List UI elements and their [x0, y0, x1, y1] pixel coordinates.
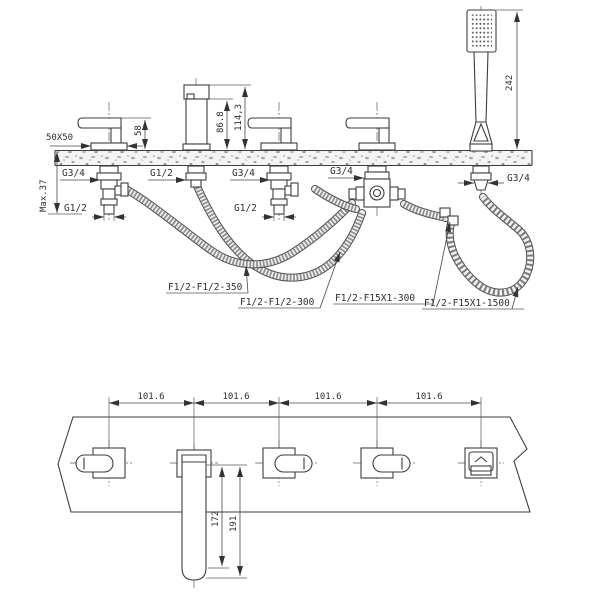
tub-spout: [183, 85, 210, 187]
hoses: [126, 184, 530, 293]
side-elevation-view: 58 86.8 114,3 242 50X50 Max.37 G3/4 G1/: [39, 6, 532, 309]
label-spout-shank: G1/2: [150, 168, 173, 179]
label-handshower-shank: G3/4: [507, 173, 530, 184]
dim-spout-height: 114,3: [234, 104, 244, 131]
label-valve2-inlet: G1/2: [234, 203, 257, 214]
dim-spout-reach: 172 191: [206, 465, 247, 578]
plan-diverter: [361, 448, 410, 478]
plan-valve-1: [76, 448, 125, 478]
spray-face: [472, 15, 493, 47]
dim-spacing-3: 101.6: [314, 392, 341, 402]
dim-spacing-4: 101.6: [415, 392, 442, 402]
plan-view: 101.6 101.6 101.6 101.6: [58, 392, 530, 588]
valve-1-lever: [78, 118, 121, 128]
hand-shower-handle: [474, 52, 488, 122]
dim-handle-height: 58: [134, 125, 144, 136]
hose-label-350: F1/2-F1/2-350: [168, 282, 243, 293]
label-valve1-shank: G3/4: [62, 168, 85, 179]
dim-spout-outer: 191: [229, 516, 239, 532]
deck-cross-section: [55, 151, 532, 166]
dim-spout-outlet-height: 86.8: [216, 111, 226, 133]
plan-extension-lines: [109, 397, 481, 452]
plan-shower-holder: [465, 448, 497, 478]
dim-handshower-height: 242: [505, 75, 515, 91]
label-valve2-shank: G3/4: [232, 168, 255, 179]
installation-diagram: 58 86.8 114,3 242 50X50 Max.37 G3/4 G1/: [0, 0, 600, 600]
hose-coupler: [440, 208, 458, 225]
hose-label-f15-1500: F1/2-F15X1-1500: [424, 298, 510, 309]
dim-spacing-1: 101.6: [137, 392, 164, 402]
hand-shower-cradle: [470, 144, 492, 151]
hose-label-f15-300: F1/2-F15X1-300: [335, 293, 415, 304]
diverter-lever: [346, 118, 389, 128]
drawing-canvas: 58 86.8 114,3 242 50X50 Max.37 G3/4 G1/: [0, 0, 600, 600]
label-diverter-shank: G3/4: [330, 166, 353, 177]
hose-label-300: F1/2-F1/2-300: [240, 297, 315, 308]
shower-hose-spiral: [450, 197, 531, 293]
label-valve1-inlet: G1/2: [64, 203, 87, 214]
dim-escutcheon-size: 50X50: [46, 133, 73, 143]
plan-spout: [177, 450, 211, 580]
dim-max-deck-thickness: Max.37: [39, 179, 49, 212]
dim-hole-spacing: 101.6 101.6 101.6 101.6: [109, 392, 481, 403]
plan-valve-2: [263, 448, 312, 478]
dim-spout-inner: 172: [211, 511, 221, 527]
dim-spacing-2: 101.6: [222, 392, 249, 402]
valve-2-lever: [248, 118, 291, 128]
